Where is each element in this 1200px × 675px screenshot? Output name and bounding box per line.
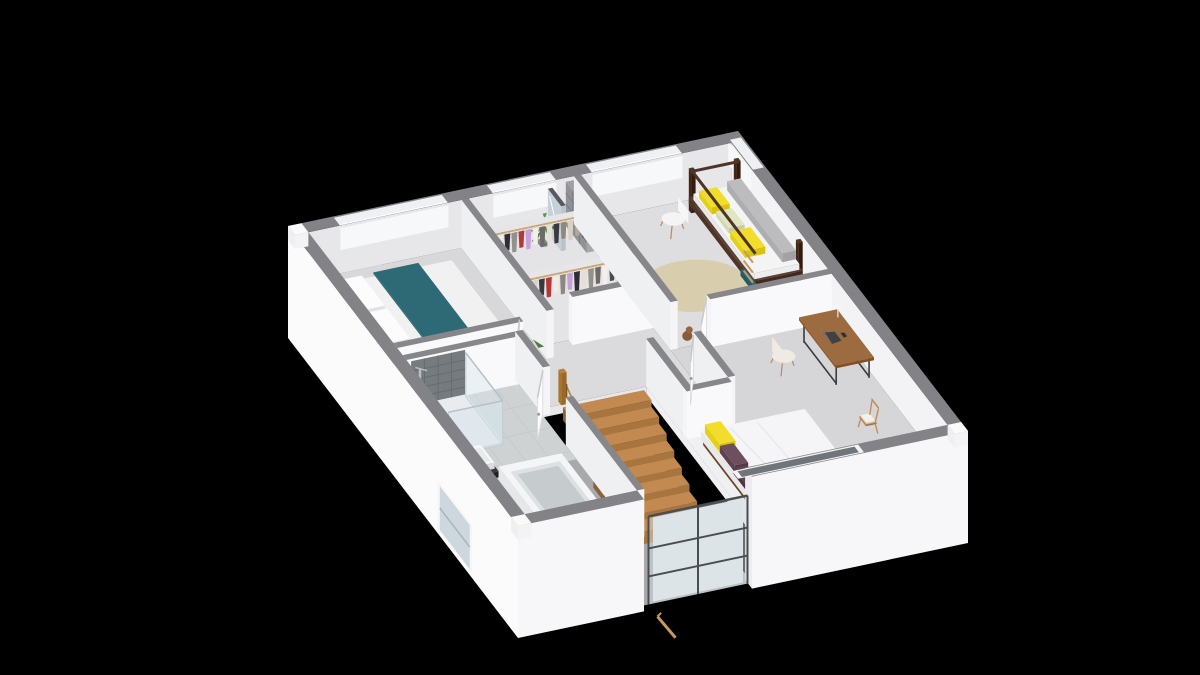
render-stage [0,0,1200,675]
floorplan-3d-render [0,0,1200,675]
